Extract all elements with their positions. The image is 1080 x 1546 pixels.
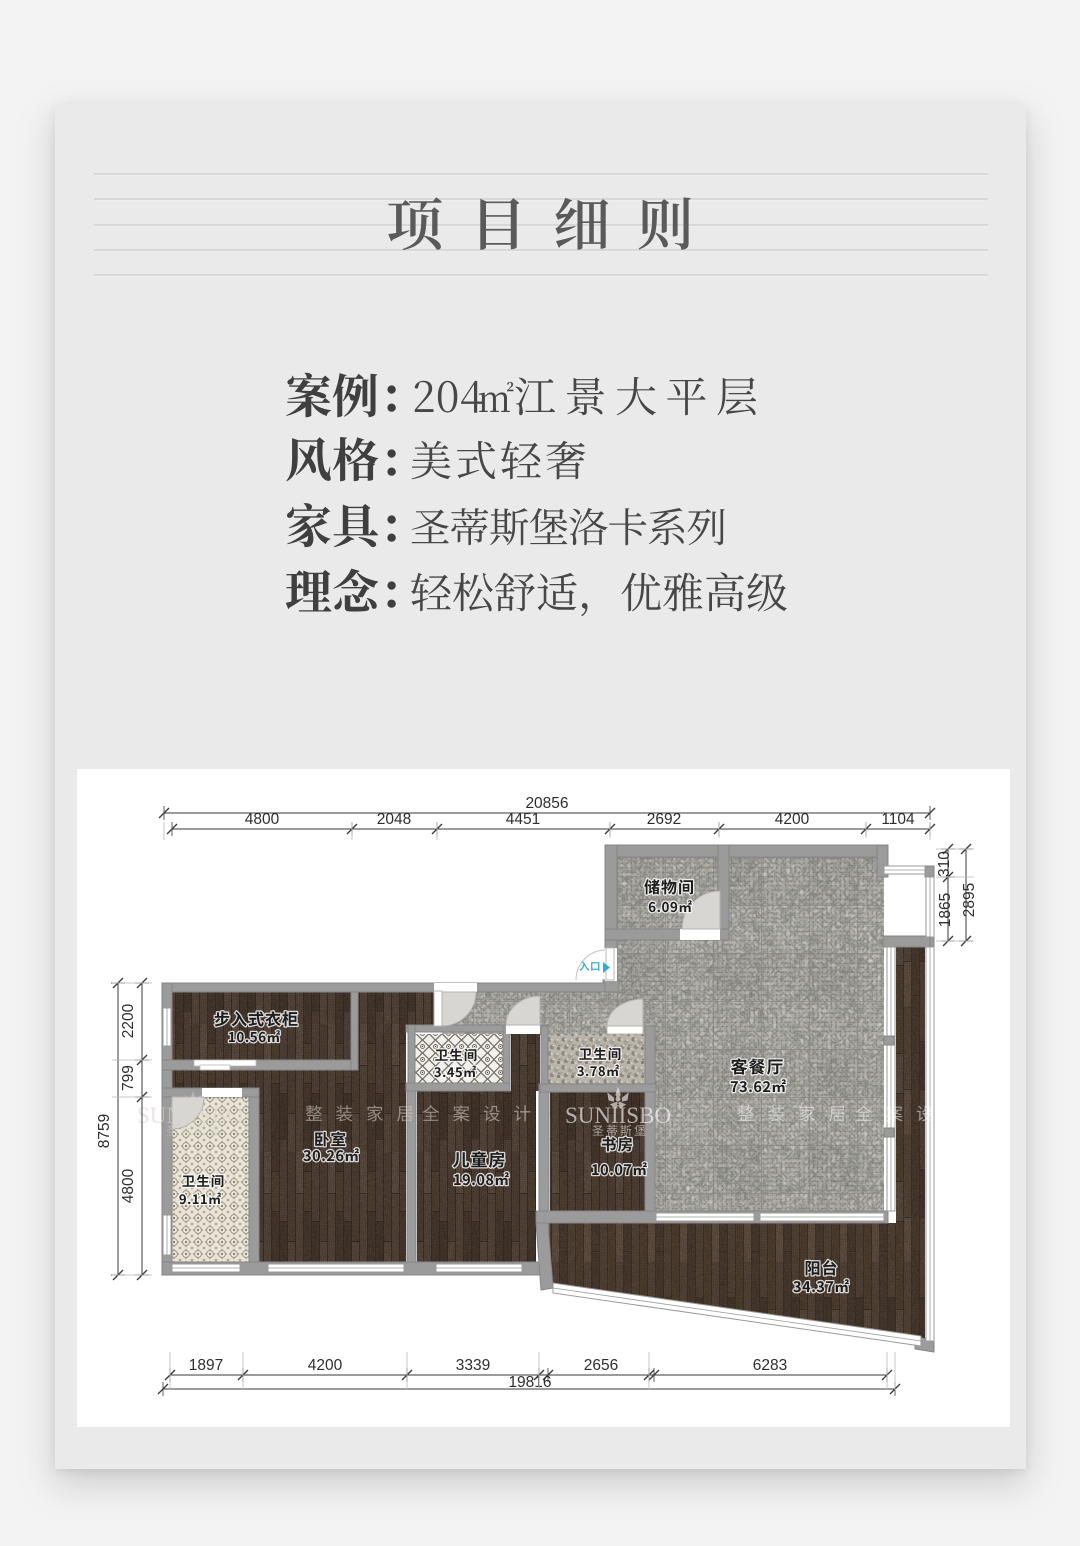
svg-text:2656: 2656 <box>584 1357 618 1374</box>
svg-text:1104: 1104 <box>881 811 915 828</box>
svg-text:19816: 19816 <box>508 1374 551 1391</box>
svg-text:2895: 2895 <box>961 883 978 917</box>
svg-text:3339: 3339 <box>456 1357 490 1374</box>
svg-text:1865: 1865 <box>937 893 954 927</box>
svg-text:8759: 8759 <box>96 1114 113 1148</box>
svg-text:2200: 2200 <box>120 1003 137 1038</box>
svg-text:1897: 1897 <box>189 1357 223 1374</box>
svg-text:6283: 6283 <box>753 1357 787 1374</box>
svg-text:SUNIISBO: SUNIISBO <box>565 1103 671 1128</box>
svg-text:4800: 4800 <box>245 811 280 828</box>
svg-text:799: 799 <box>120 1065 137 1091</box>
svg-text:4200: 4200 <box>308 1357 343 1374</box>
svg-text:SUNIISBO: SUNIISBO <box>137 1103 243 1128</box>
svg-text:2692: 2692 <box>647 811 681 828</box>
svg-text:2048: 2048 <box>377 811 411 828</box>
svg-text:20856: 20856 <box>525 795 568 812</box>
svg-text:4200: 4200 <box>775 811 810 828</box>
svg-text:4451: 4451 <box>506 811 540 828</box>
svg-text:310: 310 <box>936 851 953 877</box>
svg-text:4800: 4800 <box>120 1168 137 1203</box>
